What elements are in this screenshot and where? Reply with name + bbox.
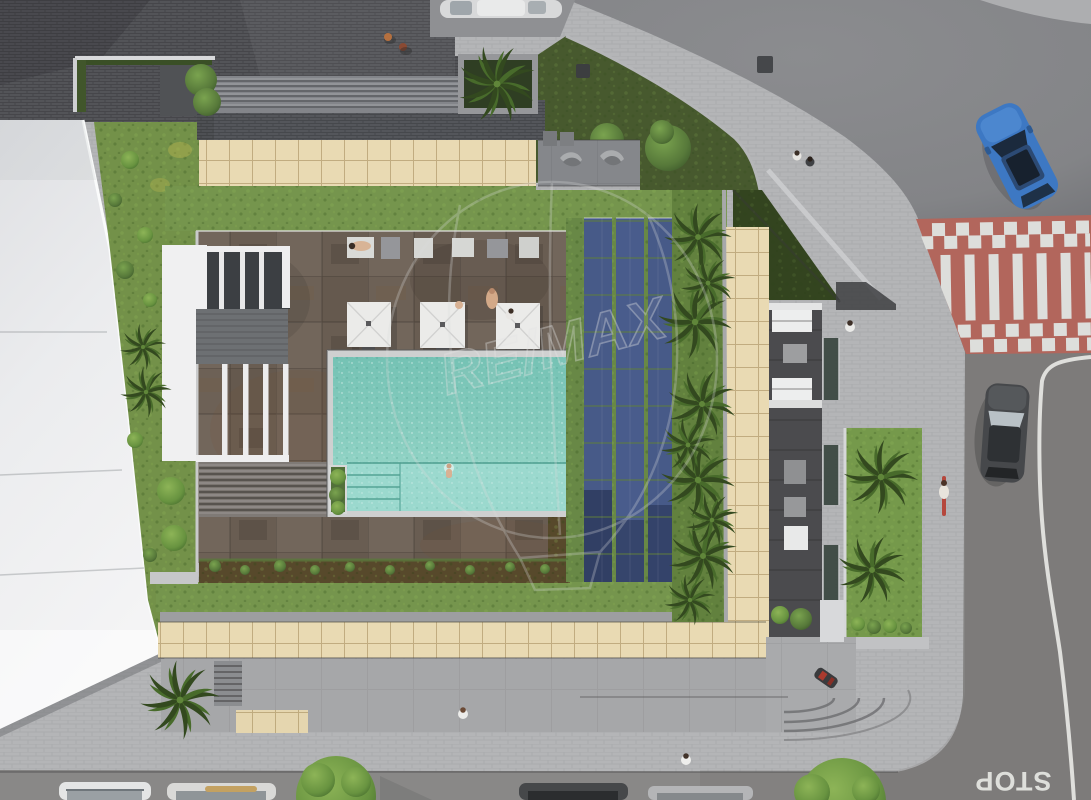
svg-text:STOP: STOP — [974, 766, 1051, 796]
